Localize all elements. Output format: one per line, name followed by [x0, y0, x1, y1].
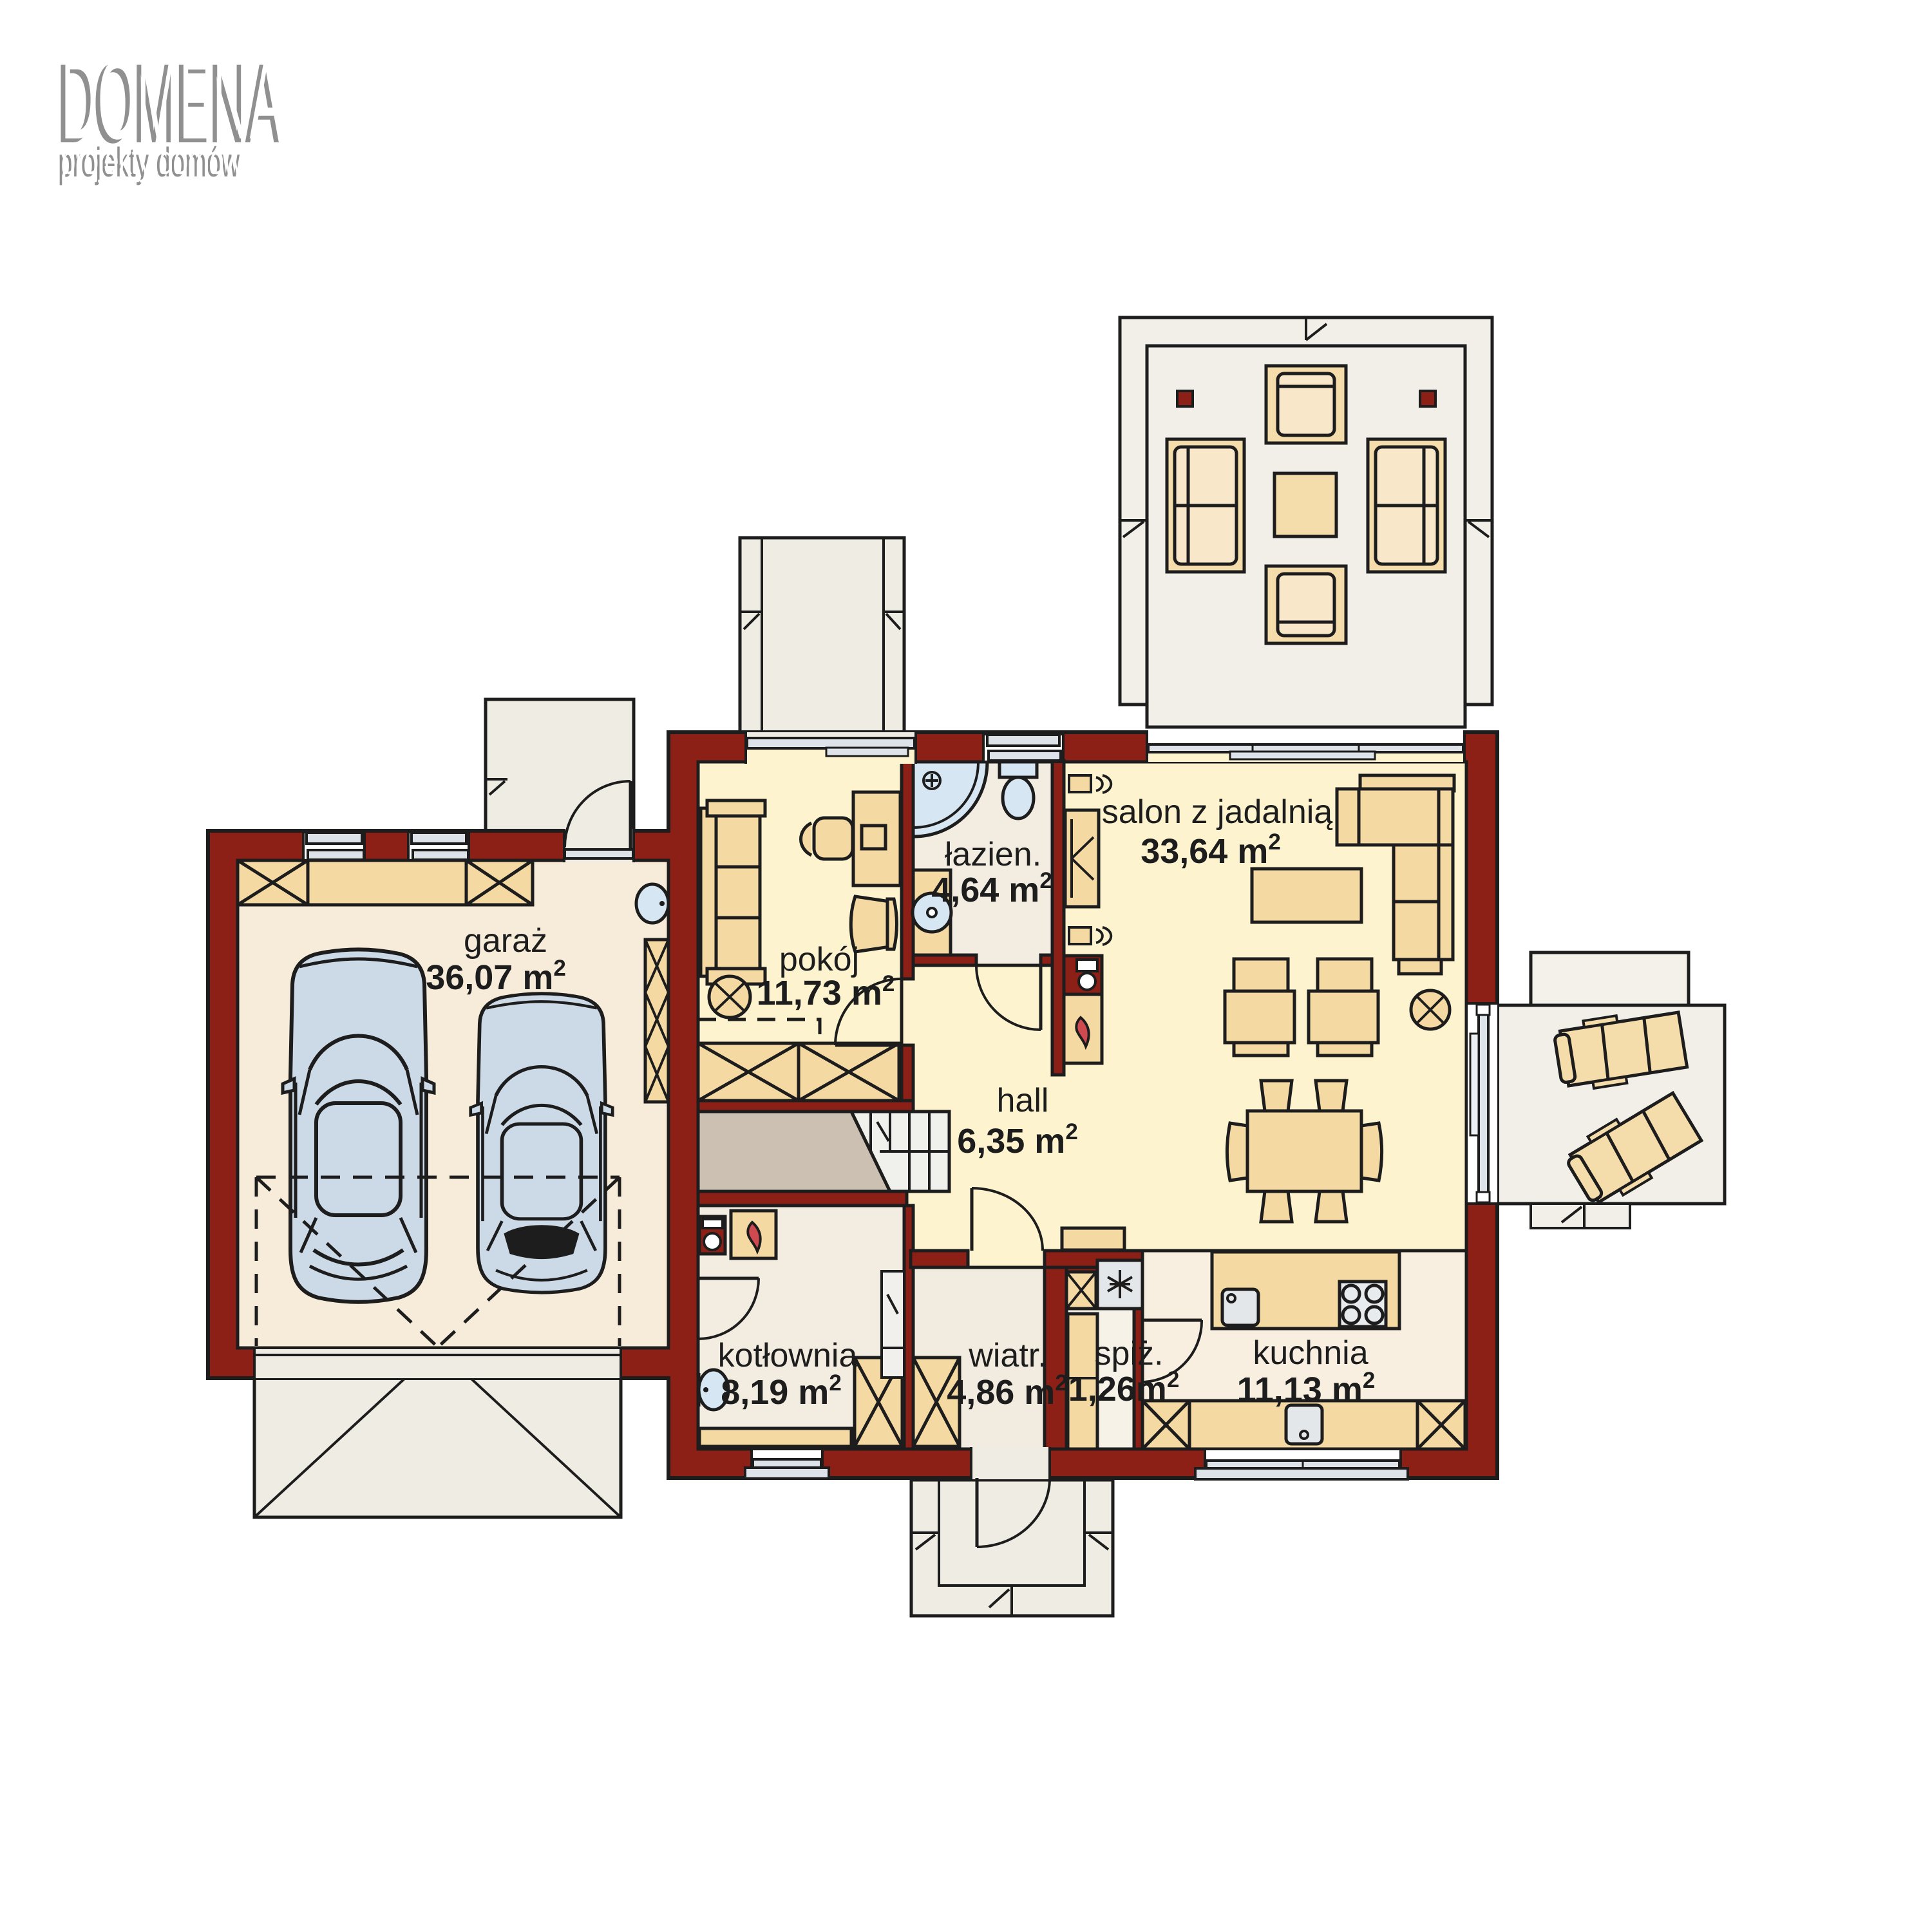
svg-text:garaż: garaż [464, 922, 547, 960]
svg-text:wiatr.: wiatr. [968, 1337, 1046, 1374]
svg-text:11,73 m2: 11,73 m2 [757, 971, 895, 1012]
svg-text:4,64 m2: 4,64 m2 [931, 868, 1052, 909]
svg-text:36,07 m2: 36,07 m2 [426, 956, 566, 997]
svg-text:33,64 m2: 33,64 m2 [1141, 829, 1281, 871]
svg-text:łazien.: łazien. [945, 836, 1041, 873]
svg-text:pokój: pokój [779, 941, 859, 978]
svg-text:11,13 m2: 11,13 m2 [1237, 1368, 1376, 1409]
svg-text:4,86 m2: 4,86 m2 [947, 1370, 1068, 1412]
svg-text:spiż.: spiż. [1095, 1335, 1164, 1372]
svg-text:6,35 m2: 6,35 m2 [957, 1119, 1078, 1160]
svg-text:salon z jadalnią: salon z jadalnią [1102, 793, 1333, 831]
svg-text:projekty domów: projekty domów [61, 137, 243, 183]
svg-text:8,19 m2: 8,19 m2 [721, 1370, 842, 1412]
svg-text:1,26m2: 1,26m2 [1068, 1367, 1180, 1408]
svg-text:kotłownia: kotłownia [718, 1337, 858, 1374]
svg-text:kuchnia: kuchnia [1253, 1334, 1368, 1372]
svg-text:hall: hall [997, 1082, 1049, 1119]
